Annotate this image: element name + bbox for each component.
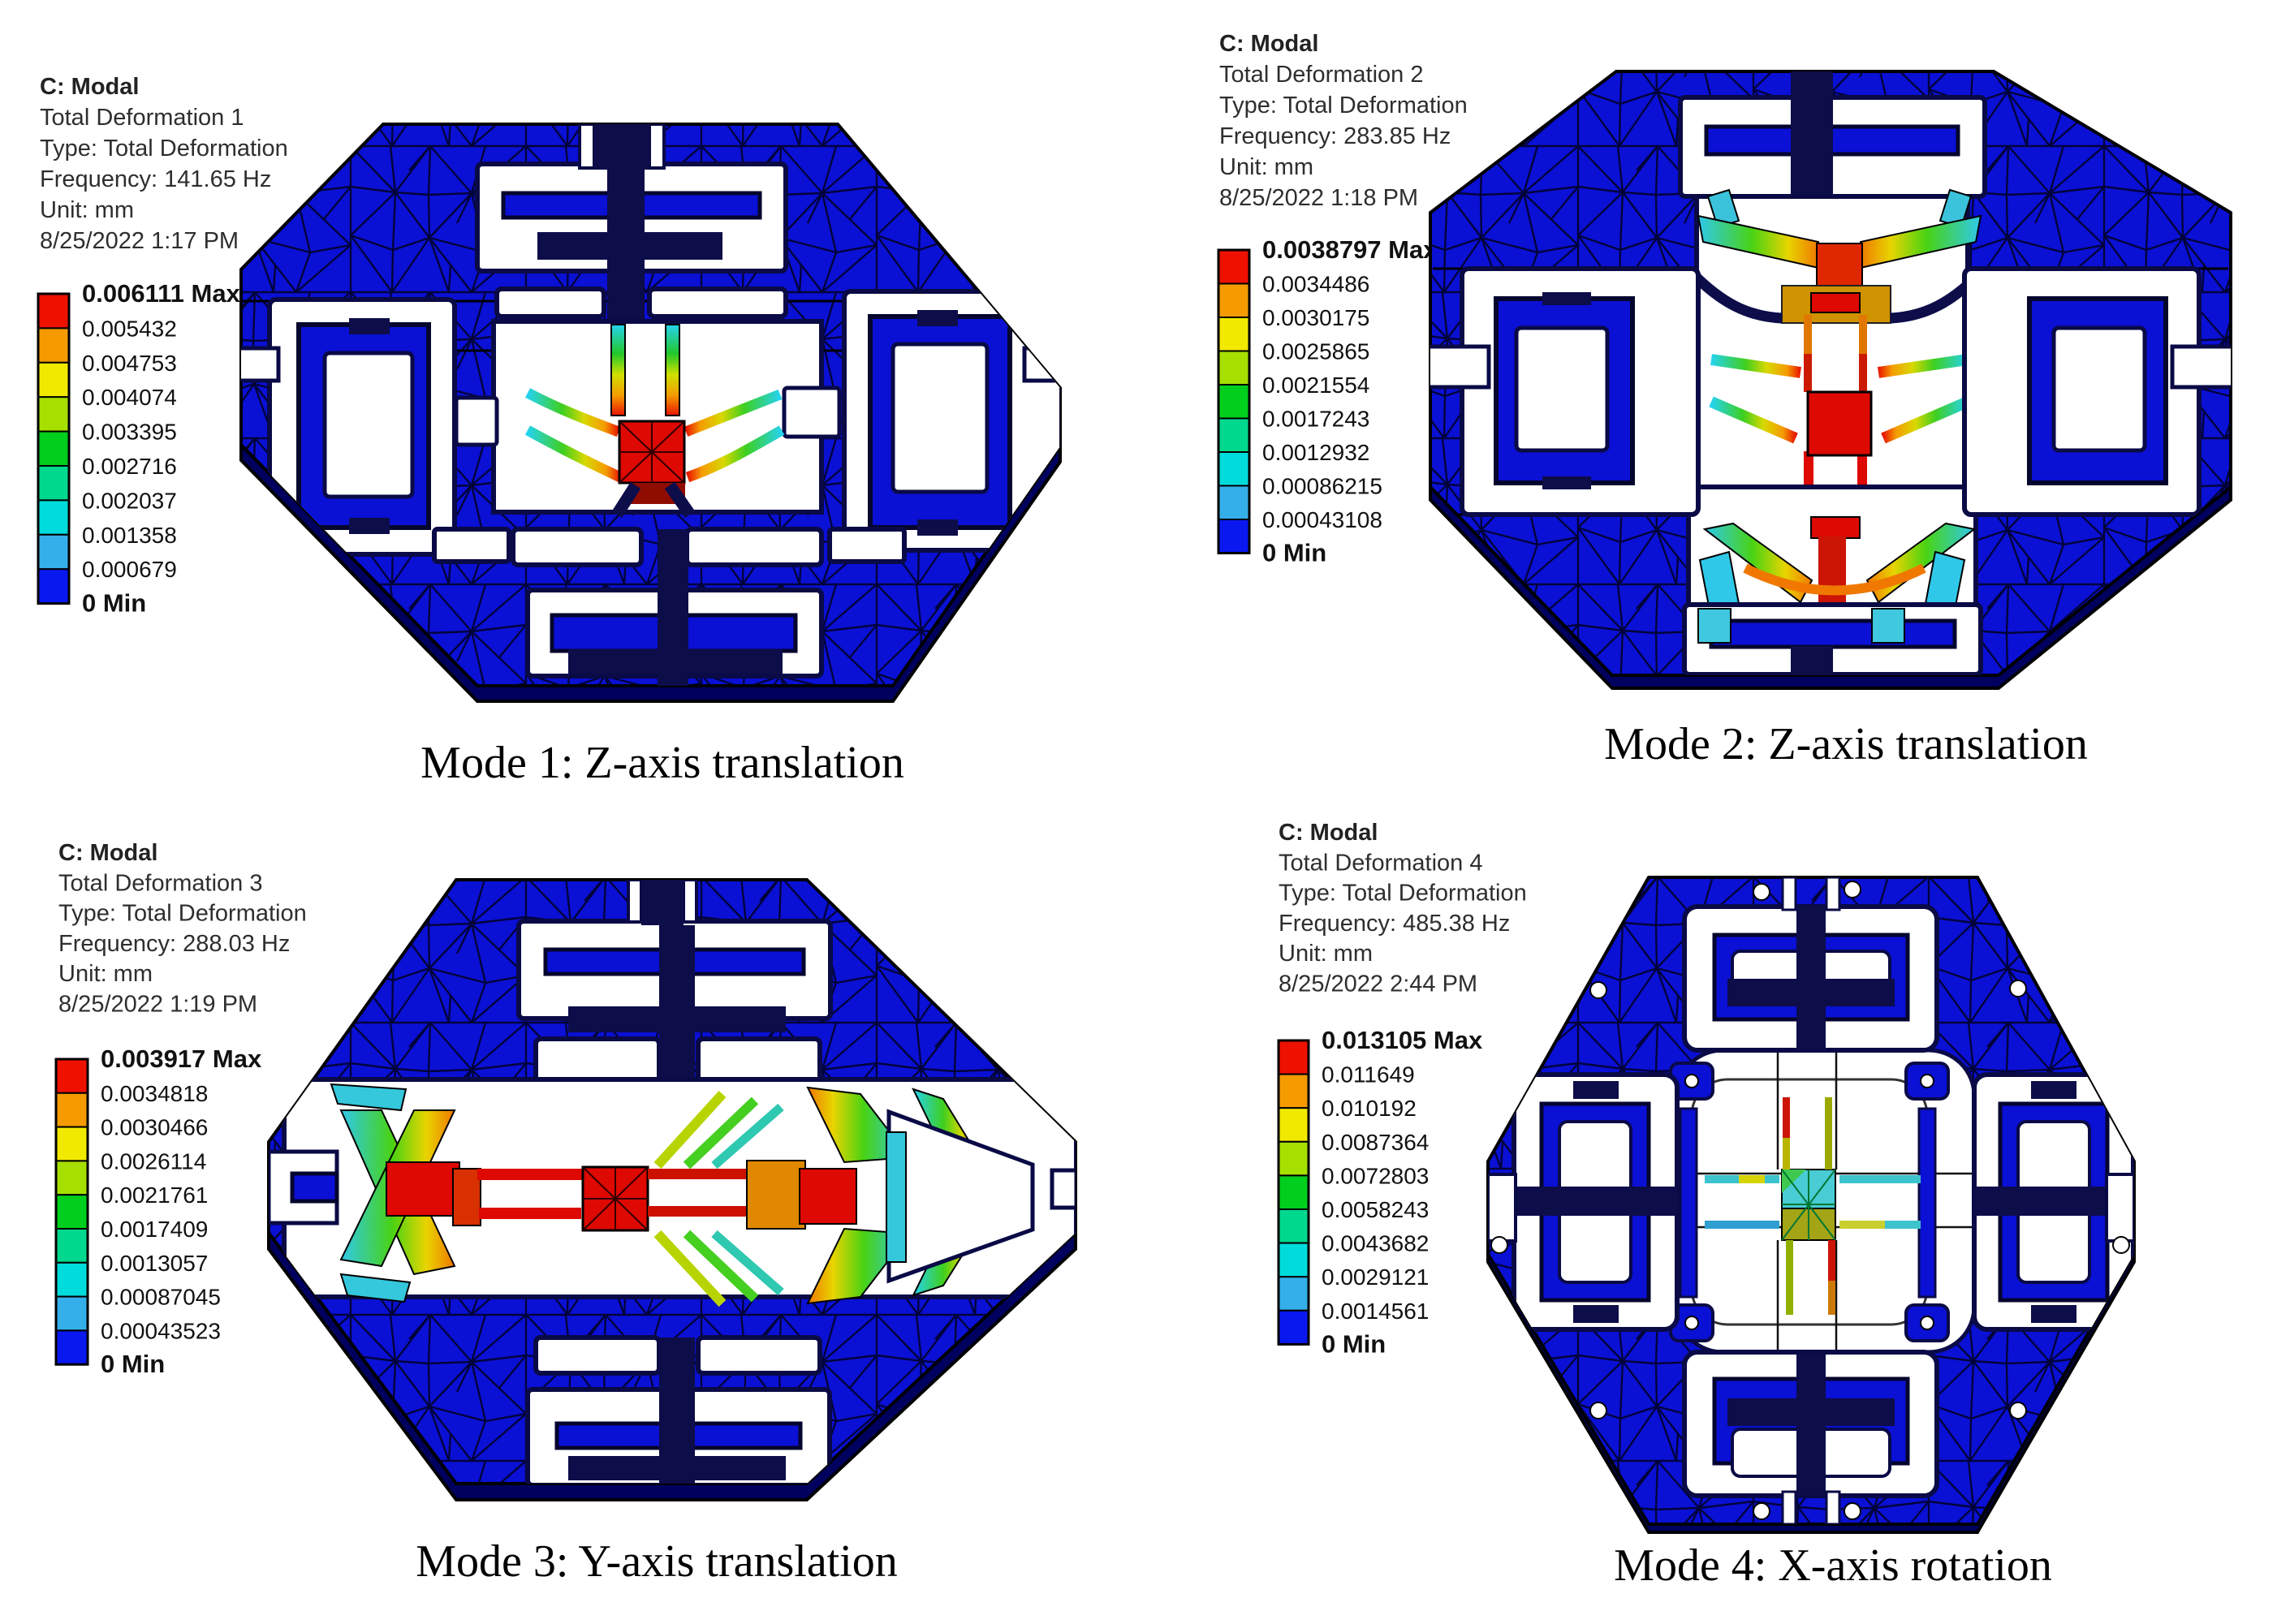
- svg-text:0.0025865: 0.0025865: [1262, 339, 1369, 364]
- svg-text:0.005432: 0.005432: [82, 316, 177, 341]
- svg-text:Total Deformation 3: Total Deformation 3: [58, 870, 262, 896]
- svg-text:Type: Total Deformation: Type: Total Deformation: [58, 901, 307, 927]
- svg-text:Total Deformation 1: Total Deformation 1: [40, 105, 244, 131]
- svg-text:8/25/2022 1:18 PM: 8/25/2022 1:18 PM: [1219, 185, 1418, 211]
- svg-text:0.0017409: 0.0017409: [101, 1217, 208, 1242]
- svg-text:0.00043108: 0.00043108: [1262, 507, 1382, 532]
- svg-text:0.0058243: 0.0058243: [1322, 1197, 1429, 1222]
- svg-text:0.0034818: 0.0034818: [101, 1081, 208, 1106]
- svg-text:0.0021761: 0.0021761: [101, 1182, 208, 1208]
- svg-text:0.003917 Max: 0.003917 Max: [101, 1045, 262, 1073]
- svg-text:0.00086215: 0.00086215: [1262, 474, 1382, 499]
- svg-text:0.0030466: 0.0030466: [101, 1115, 208, 1140]
- svg-text:0.0087364: 0.0087364: [1322, 1130, 1429, 1155]
- svg-text:Frequency: 283.85 Hz: Frequency: 283.85 Hz: [1219, 123, 1451, 149]
- svg-text:0.0017243: 0.0017243: [1262, 407, 1369, 432]
- svg-text:Type: Total Deformation: Type: Total Deformation: [1279, 881, 1527, 907]
- svg-text:0 Min: 0 Min: [82, 589, 146, 618]
- svg-text:0.0072803: 0.0072803: [1322, 1163, 1429, 1188]
- svg-text:0.0014561: 0.0014561: [1322, 1299, 1429, 1324]
- svg-text:0.00043523: 0.00043523: [101, 1318, 221, 1343]
- svg-text:0.00087045: 0.00087045: [101, 1285, 221, 1310]
- svg-text:0 Min: 0 Min: [1322, 1329, 1386, 1358]
- svg-text:0.013105 Max: 0.013105 Max: [1322, 1026, 1483, 1054]
- svg-text:0.001358: 0.001358: [82, 523, 177, 548]
- svg-text:8/25/2022 1:17 PM: 8/25/2022 1:17 PM: [40, 228, 239, 254]
- svg-text:Mode 2: Z-axis translation: Mode 2: Z-axis translation: [1604, 719, 2088, 769]
- svg-text:0.0029121: 0.0029121: [1322, 1264, 1429, 1290]
- svg-text:0.0043682: 0.0043682: [1322, 1231, 1429, 1256]
- svg-text:Total Deformation 4: Total Deformation 4: [1279, 850, 1482, 876]
- svg-text:0.010192: 0.010192: [1322, 1096, 1417, 1121]
- svg-text:Frequency: 288.03 Hz: Frequency: 288.03 Hz: [58, 931, 290, 957]
- svg-text:0.004074: 0.004074: [82, 385, 177, 410]
- svg-text:0.002037: 0.002037: [82, 488, 177, 513]
- svg-text:Mode 3: Y-axis translation: Mode 3: Y-axis translation: [416, 1536, 898, 1587]
- svg-text:Unit: mm: Unit: mm: [40, 197, 134, 223]
- svg-text:Total Deformation 2: Total Deformation 2: [1219, 62, 1423, 88]
- svg-text:Unit: mm: Unit: mm: [1279, 941, 1373, 967]
- svg-text:Mode 1: Z-axis translation: Mode 1: Z-axis translation: [420, 738, 904, 788]
- svg-text:0 Min: 0 Min: [1262, 539, 1326, 567]
- svg-text:C: Modal: C: Modal: [1219, 31, 1318, 57]
- svg-text:0.0026114: 0.0026114: [101, 1148, 206, 1174]
- svg-text:8/25/2022 1:19 PM: 8/25/2022 1:19 PM: [58, 992, 257, 1018]
- svg-text:0.002716: 0.002716: [82, 454, 177, 479]
- svg-text:0.0034486: 0.0034486: [1262, 272, 1369, 297]
- svg-text:Mode 4: X-axis rotation: Mode 4: X-axis rotation: [1614, 1540, 2052, 1591]
- svg-text:C: Modal: C: Modal: [1279, 820, 1378, 846]
- svg-text:0.0021554: 0.0021554: [1262, 373, 1369, 398]
- svg-text:Frequency: 485.38 Hz: Frequency: 485.38 Hz: [1279, 911, 1510, 937]
- svg-text:Type: Total Deformation: Type: Total Deformation: [1219, 93, 1468, 118]
- svg-text:0.006111 Max: 0.006111 Max: [82, 279, 241, 308]
- svg-text:C: Modal: C: Modal: [58, 840, 157, 866]
- svg-text:0.0012932: 0.0012932: [1262, 440, 1369, 465]
- svg-text:0.004753: 0.004753: [82, 351, 177, 376]
- svg-text:0.003395: 0.003395: [82, 420, 177, 445]
- svg-text:Type: Total Deformation: Type: Total Deformation: [40, 136, 288, 162]
- svg-text:0.000679: 0.000679: [82, 557, 177, 582]
- svg-text:0 Min: 0 Min: [101, 1350, 165, 1378]
- svg-text:0.0030175: 0.0030175: [1262, 305, 1369, 330]
- svg-text:8/25/2022 2:44 PM: 8/25/2022 2:44 PM: [1279, 971, 1477, 997]
- svg-text:0.0013057: 0.0013057: [101, 1251, 208, 1276]
- svg-text:0.0038797 Max: 0.0038797 Max: [1262, 235, 1438, 264]
- svg-text:0.011649: 0.011649: [1322, 1062, 1415, 1088]
- svg-text:Unit: mm: Unit: mm: [58, 961, 153, 987]
- svg-text:Frequency: 141.65 Hz: Frequency: 141.65 Hz: [40, 166, 271, 192]
- svg-text:C: Modal: C: Modal: [40, 74, 139, 100]
- svg-text:Unit: mm: Unit: mm: [1219, 154, 1313, 180]
